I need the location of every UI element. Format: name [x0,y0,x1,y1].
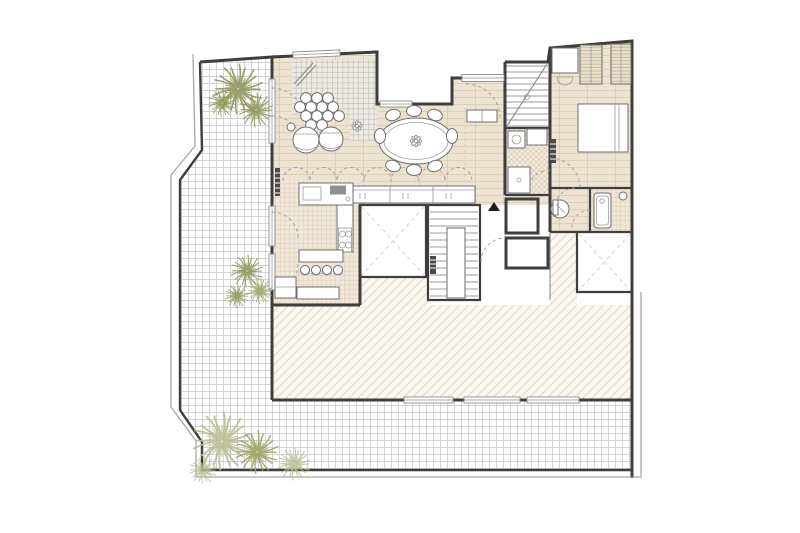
armchair [293,127,319,153]
floor-plan [0,0,800,533]
plant-pot-flower [352,121,362,131]
side-table [287,123,295,131]
radiator [550,139,556,163]
radiator [275,168,280,196]
wardrobe [611,44,631,84]
radiator [430,256,436,274]
bed [578,104,628,152]
kitchen-island [299,183,353,205]
hall-cabinet [467,110,497,122]
kitchen-counter-cooktop [337,205,353,252]
entry-staircase [505,62,548,128]
toilet [551,200,569,218]
lightwell-2 [577,232,632,292]
wardrobe [580,45,602,84]
main-staircase [428,205,480,300]
sideboard [347,186,475,203]
floor-plan-canvas [0,0,800,533]
lightwell-1 [360,205,426,277]
armchair [319,127,343,151]
